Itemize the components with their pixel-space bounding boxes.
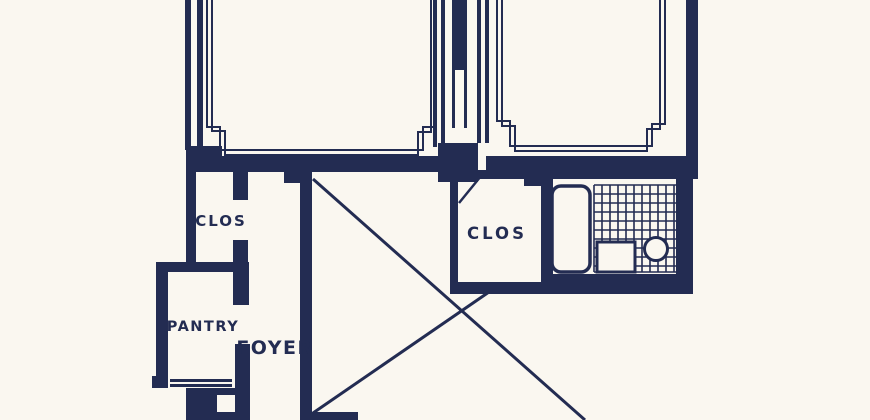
bathtub xyxy=(552,186,590,272)
closet-right-label: CLOS xyxy=(467,224,527,243)
wall-segment xyxy=(441,0,445,147)
inner-border-line xyxy=(502,0,660,151)
pantry: PANTRY xyxy=(152,262,250,420)
closet-left-label: CLOS xyxy=(195,212,247,230)
wall-segment xyxy=(477,0,481,143)
diagonal-cross-line xyxy=(313,292,489,413)
wall-segment xyxy=(477,170,698,179)
wall-segment xyxy=(686,0,698,178)
wall-segment xyxy=(450,177,458,289)
pantry-label: PANTRY xyxy=(167,319,239,335)
wall-segment xyxy=(233,262,249,305)
inner-border-line xyxy=(497,0,665,146)
wall-segment xyxy=(541,274,693,294)
foyer: FOYER xyxy=(236,172,358,420)
wall-segment xyxy=(185,0,191,150)
closet-right: CLOS xyxy=(450,176,545,294)
wall-segment xyxy=(156,262,238,272)
wall-segment xyxy=(197,0,203,150)
wall-segment xyxy=(450,282,545,294)
wall-segment xyxy=(186,148,196,265)
wall-segment xyxy=(300,172,312,420)
foyer-label: FOYER xyxy=(236,337,313,359)
wall-junction-block xyxy=(438,143,478,182)
door-jamb xyxy=(233,172,248,200)
wall-segment xyxy=(303,412,358,420)
floor-plan-drawing: CLOS PANTRY FOYER CLOS xyxy=(0,0,870,420)
room-top-right xyxy=(477,0,698,178)
entry-wall-block xyxy=(186,388,217,420)
inner-border-line xyxy=(207,0,436,150)
wall-segment xyxy=(486,156,698,170)
toilet xyxy=(645,238,668,261)
wall-segment xyxy=(217,412,235,420)
inner-border-line xyxy=(212,0,431,155)
door-threshold-line xyxy=(170,379,232,382)
wall-segment xyxy=(217,388,235,395)
wall-foot xyxy=(152,376,168,388)
wall-segment xyxy=(433,0,437,147)
floor-plan: CLOS PANTRY FOYER CLOS xyxy=(0,0,870,420)
sink xyxy=(597,242,635,272)
wall-segment xyxy=(220,156,440,172)
wall-segment xyxy=(464,70,467,128)
door-threshold-line xyxy=(170,384,232,387)
wall-segment xyxy=(485,0,489,143)
wall-segment xyxy=(452,70,455,128)
room-top-left xyxy=(185,0,445,172)
chase-block xyxy=(452,0,467,70)
